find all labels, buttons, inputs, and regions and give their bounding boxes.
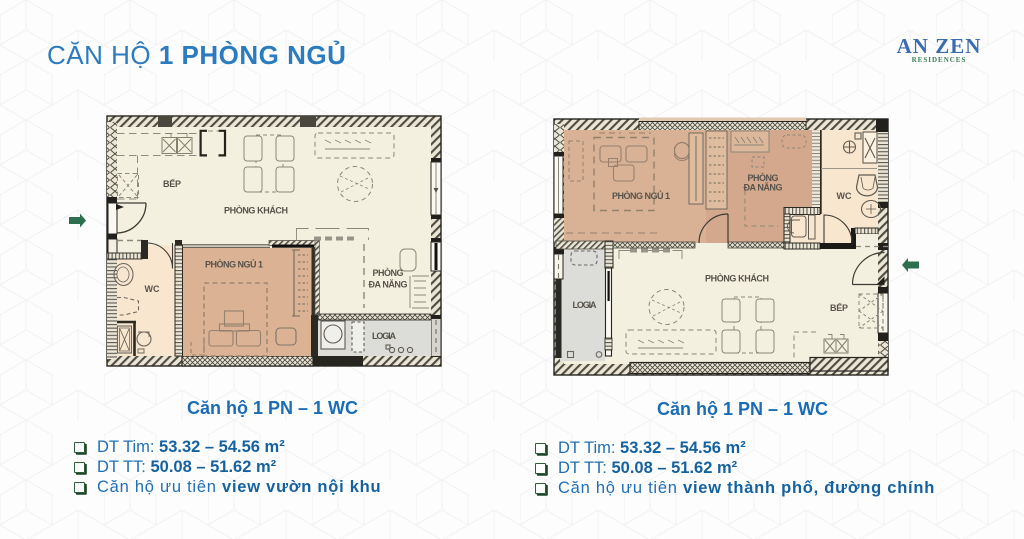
svg-text:WC: WC xyxy=(145,284,161,294)
svg-text:PHÒNG KHÁCH: PHÒNG KHÁCH xyxy=(705,273,769,284)
svg-text:ĐA NĂNG: ĐA NĂNG xyxy=(744,183,783,193)
svg-text:PHÒNG KHÁCH: PHÒNG KHÁCH xyxy=(224,205,288,216)
svg-text:BẾP: BẾP xyxy=(163,179,181,189)
svg-text:LOGIA: LOGIA xyxy=(372,331,397,341)
svg-text:PHÒNG NGỦ 1: PHÒNG NGỦ 1 xyxy=(205,259,263,270)
svg-text:LOGIA: LOGIA xyxy=(573,300,598,310)
svg-text:PHÒNG: PHÒNG xyxy=(748,172,779,183)
svg-text:PHÒNG NGỦ 1: PHÒNG NGỦ 1 xyxy=(612,190,670,201)
svg-text:PHÒNG: PHÒNG xyxy=(373,267,404,278)
svg-text:BẾP: BẾP xyxy=(830,303,848,313)
svg-text:WC: WC xyxy=(837,191,853,201)
svg-text:ĐA NĂNG: ĐA NĂNG xyxy=(369,280,408,290)
